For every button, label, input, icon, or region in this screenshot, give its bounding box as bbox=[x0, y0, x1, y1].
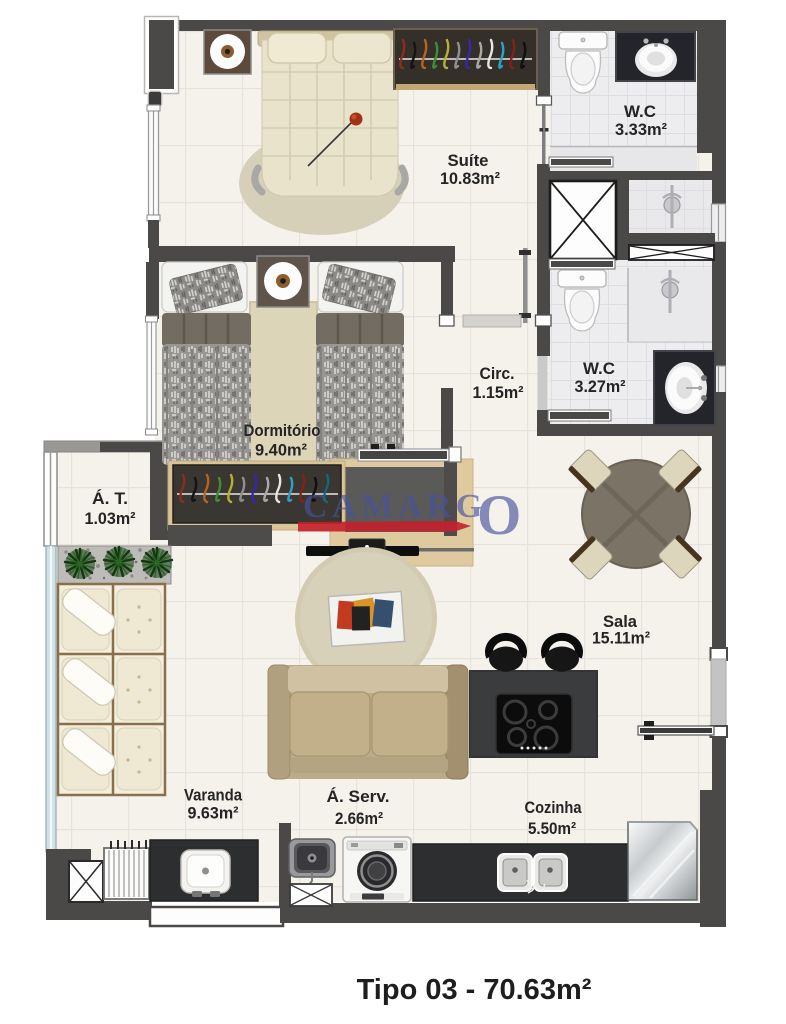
svg-text:CAMARG: CAMARG bbox=[303, 488, 487, 525]
svg-text:9.40m²: 9.40m² bbox=[255, 442, 308, 460]
svg-text:15.11m²: 15.11m² bbox=[592, 630, 650, 648]
svg-text:W.C: W.C bbox=[583, 360, 615, 378]
svg-text:Cozinha: Cozinha bbox=[525, 799, 583, 817]
svg-text:Sala: Sala bbox=[603, 613, 638, 631]
svg-text:Á. Serv.: Á. Serv. bbox=[327, 787, 390, 806]
svg-text:10.83m²: 10.83m² bbox=[440, 170, 500, 188]
svg-text:Varanda: Varanda bbox=[184, 787, 243, 805]
svg-text:5.50m²: 5.50m² bbox=[528, 820, 576, 838]
svg-text:3.27m²: 3.27m² bbox=[575, 378, 626, 396]
svg-text:2.66m²: 2.66m² bbox=[335, 810, 383, 828]
svg-text:3.33m²: 3.33m² bbox=[615, 121, 668, 139]
svg-text:Á. T.: Á. T. bbox=[92, 489, 128, 508]
svg-text:Suíte: Suíte bbox=[448, 152, 489, 170]
svg-text:O: O bbox=[477, 484, 521, 547]
svg-text:1.03m²: 1.03m² bbox=[85, 510, 136, 528]
svg-text:9.63m²: 9.63m² bbox=[188, 805, 239, 823]
svg-text:Dormitório: Dormitório bbox=[244, 422, 321, 440]
svg-text:W.C: W.C bbox=[624, 103, 656, 121]
svg-text:1.15m²: 1.15m² bbox=[473, 384, 524, 402]
svg-text:Tipo 03 - 70.63m²: Tipo 03 - 70.63m² bbox=[357, 974, 592, 1006]
svg-text:Circ.: Circ. bbox=[480, 365, 515, 383]
